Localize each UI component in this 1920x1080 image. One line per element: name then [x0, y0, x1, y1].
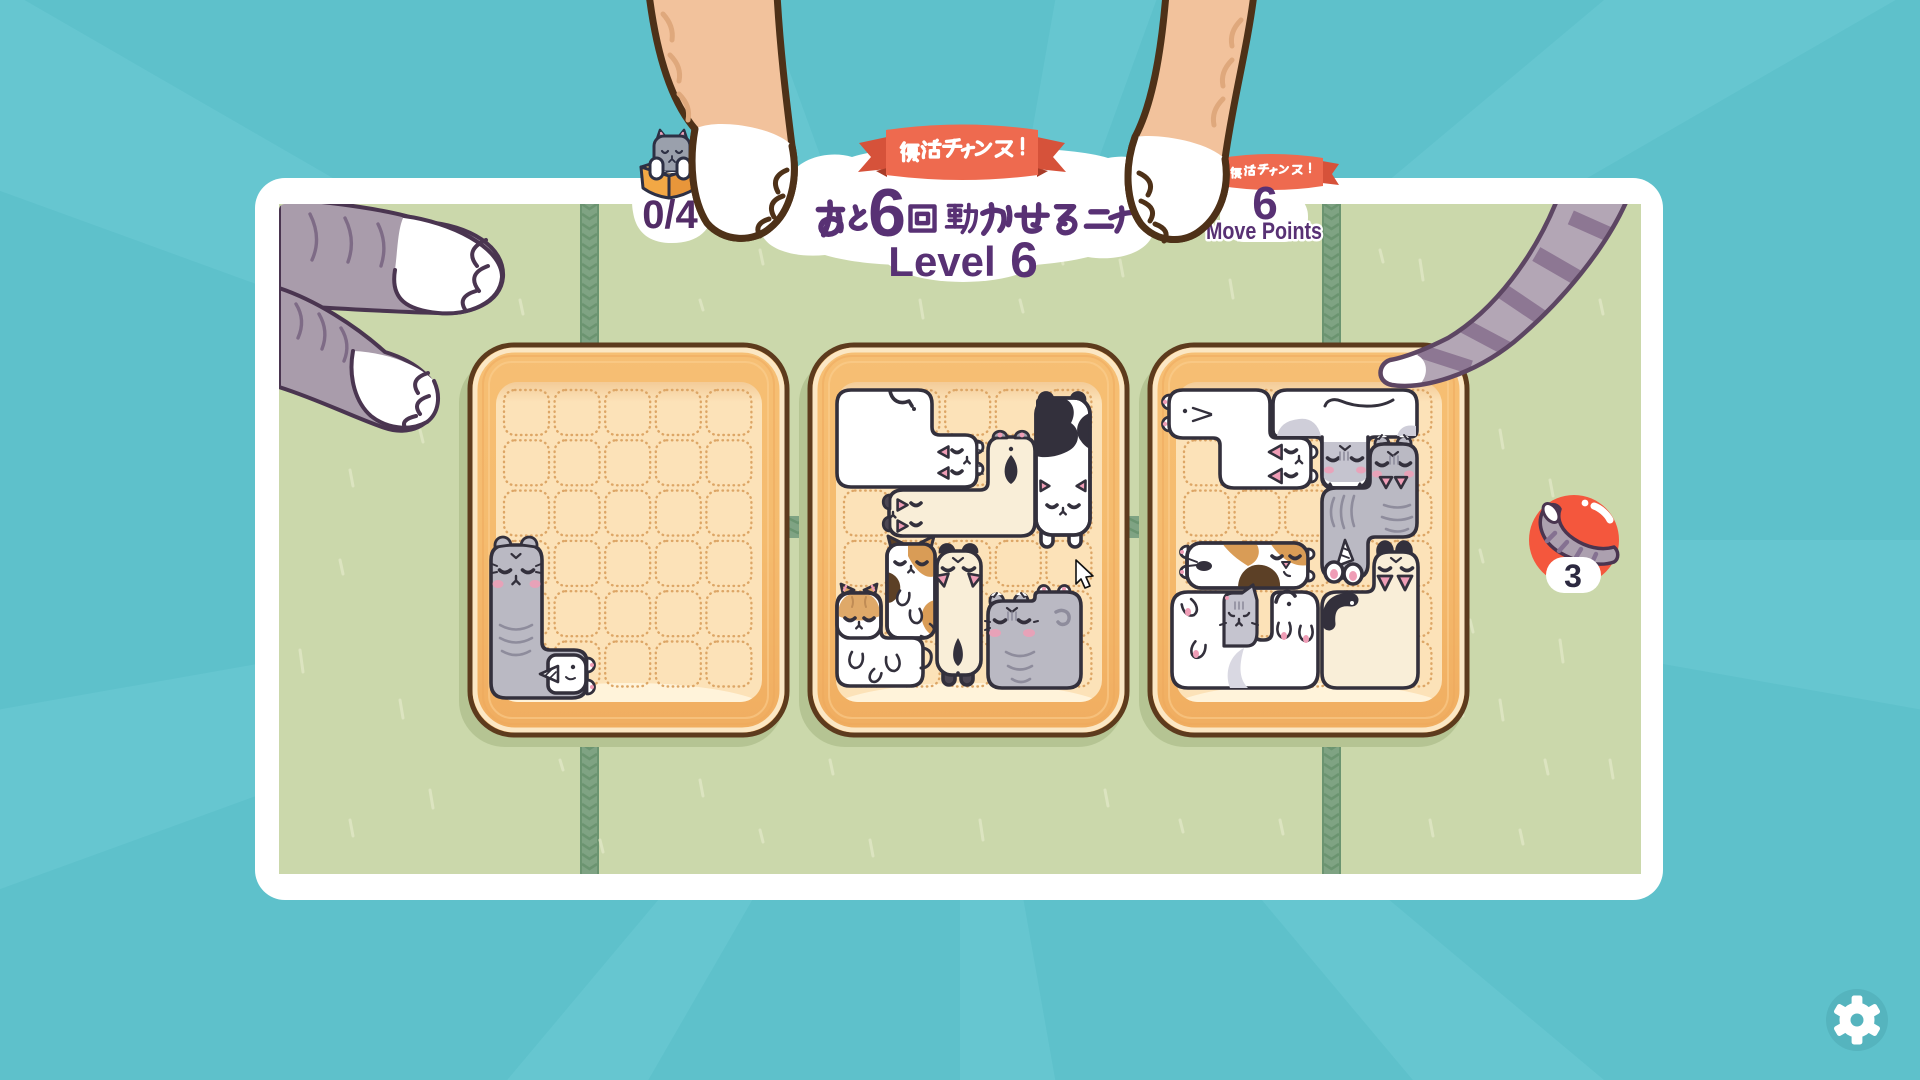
- svg-text:Level: Level: [888, 238, 995, 285]
- svg-text:Move Points: Move Points: [1206, 218, 1322, 245]
- svg-text:0/4: 0/4: [642, 193, 698, 237]
- svg-text:3: 3: [1564, 558, 1582, 594]
- svg-text:6: 6: [1010, 232, 1038, 288]
